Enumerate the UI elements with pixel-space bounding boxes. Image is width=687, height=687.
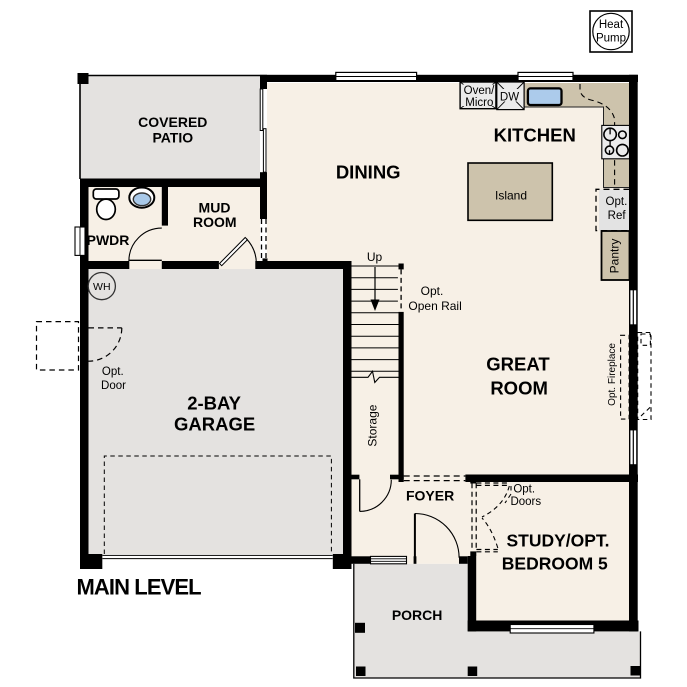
svg-text:Pump: Pump — [596, 33, 626, 45]
svg-text:DINING: DINING — [336, 161, 401, 182]
svg-text:Ref: Ref — [608, 210, 627, 222]
svg-text:Opt.: Opt. — [102, 366, 124, 378]
svg-text:Up: Up — [367, 250, 383, 264]
svg-text:ROOM: ROOM — [490, 378, 548, 399]
svg-text:Opt.: Opt. — [606, 196, 628, 208]
svg-text:Opt.: Opt. — [421, 284, 444, 298]
svg-text:BEDROOM 5: BEDROOM 5 — [502, 553, 608, 573]
svg-text:Door: Door — [101, 380, 126, 392]
svg-text:DW: DW — [500, 91, 519, 103]
svg-text:Opt.: Opt. — [513, 484, 535, 496]
svg-text:PWDR: PWDR — [87, 232, 130, 248]
svg-text:Storage: Storage — [366, 404, 380, 446]
svg-text:WH: WH — [93, 281, 111, 293]
svg-text:Micro: Micro — [465, 97, 493, 109]
svg-text:Open Rail: Open Rail — [408, 299, 461, 313]
svg-text:PATIO: PATIO — [152, 130, 193, 146]
svg-text:2-BAY: 2-BAY — [187, 393, 241, 414]
svg-text:Oven/: Oven/ — [464, 85, 495, 97]
svg-text:Doors: Doors — [510, 496, 541, 508]
svg-text:FOYER: FOYER — [406, 487, 454, 503]
svg-text:STUDY/OPT.: STUDY/OPT. — [506, 530, 609, 550]
svg-text:Island: Island — [495, 189, 527, 203]
svg-text:GREAT: GREAT — [486, 354, 550, 375]
svg-text:Heat: Heat — [599, 19, 624, 31]
svg-text:Opt. Fireplace: Opt. Fireplace — [607, 343, 618, 406]
svg-text:COVERED: COVERED — [138, 114, 207, 130]
svg-text:KITCHEN: KITCHEN — [494, 125, 576, 146]
svg-text:ROOM: ROOM — [193, 214, 237, 230]
svg-text:MAIN LEVEL: MAIN LEVEL — [76, 575, 201, 600]
svg-text:PORCH: PORCH — [392, 607, 443, 623]
svg-text:GARAGE: GARAGE — [174, 414, 255, 435]
svg-text:Pantry: Pantry — [608, 239, 622, 274]
